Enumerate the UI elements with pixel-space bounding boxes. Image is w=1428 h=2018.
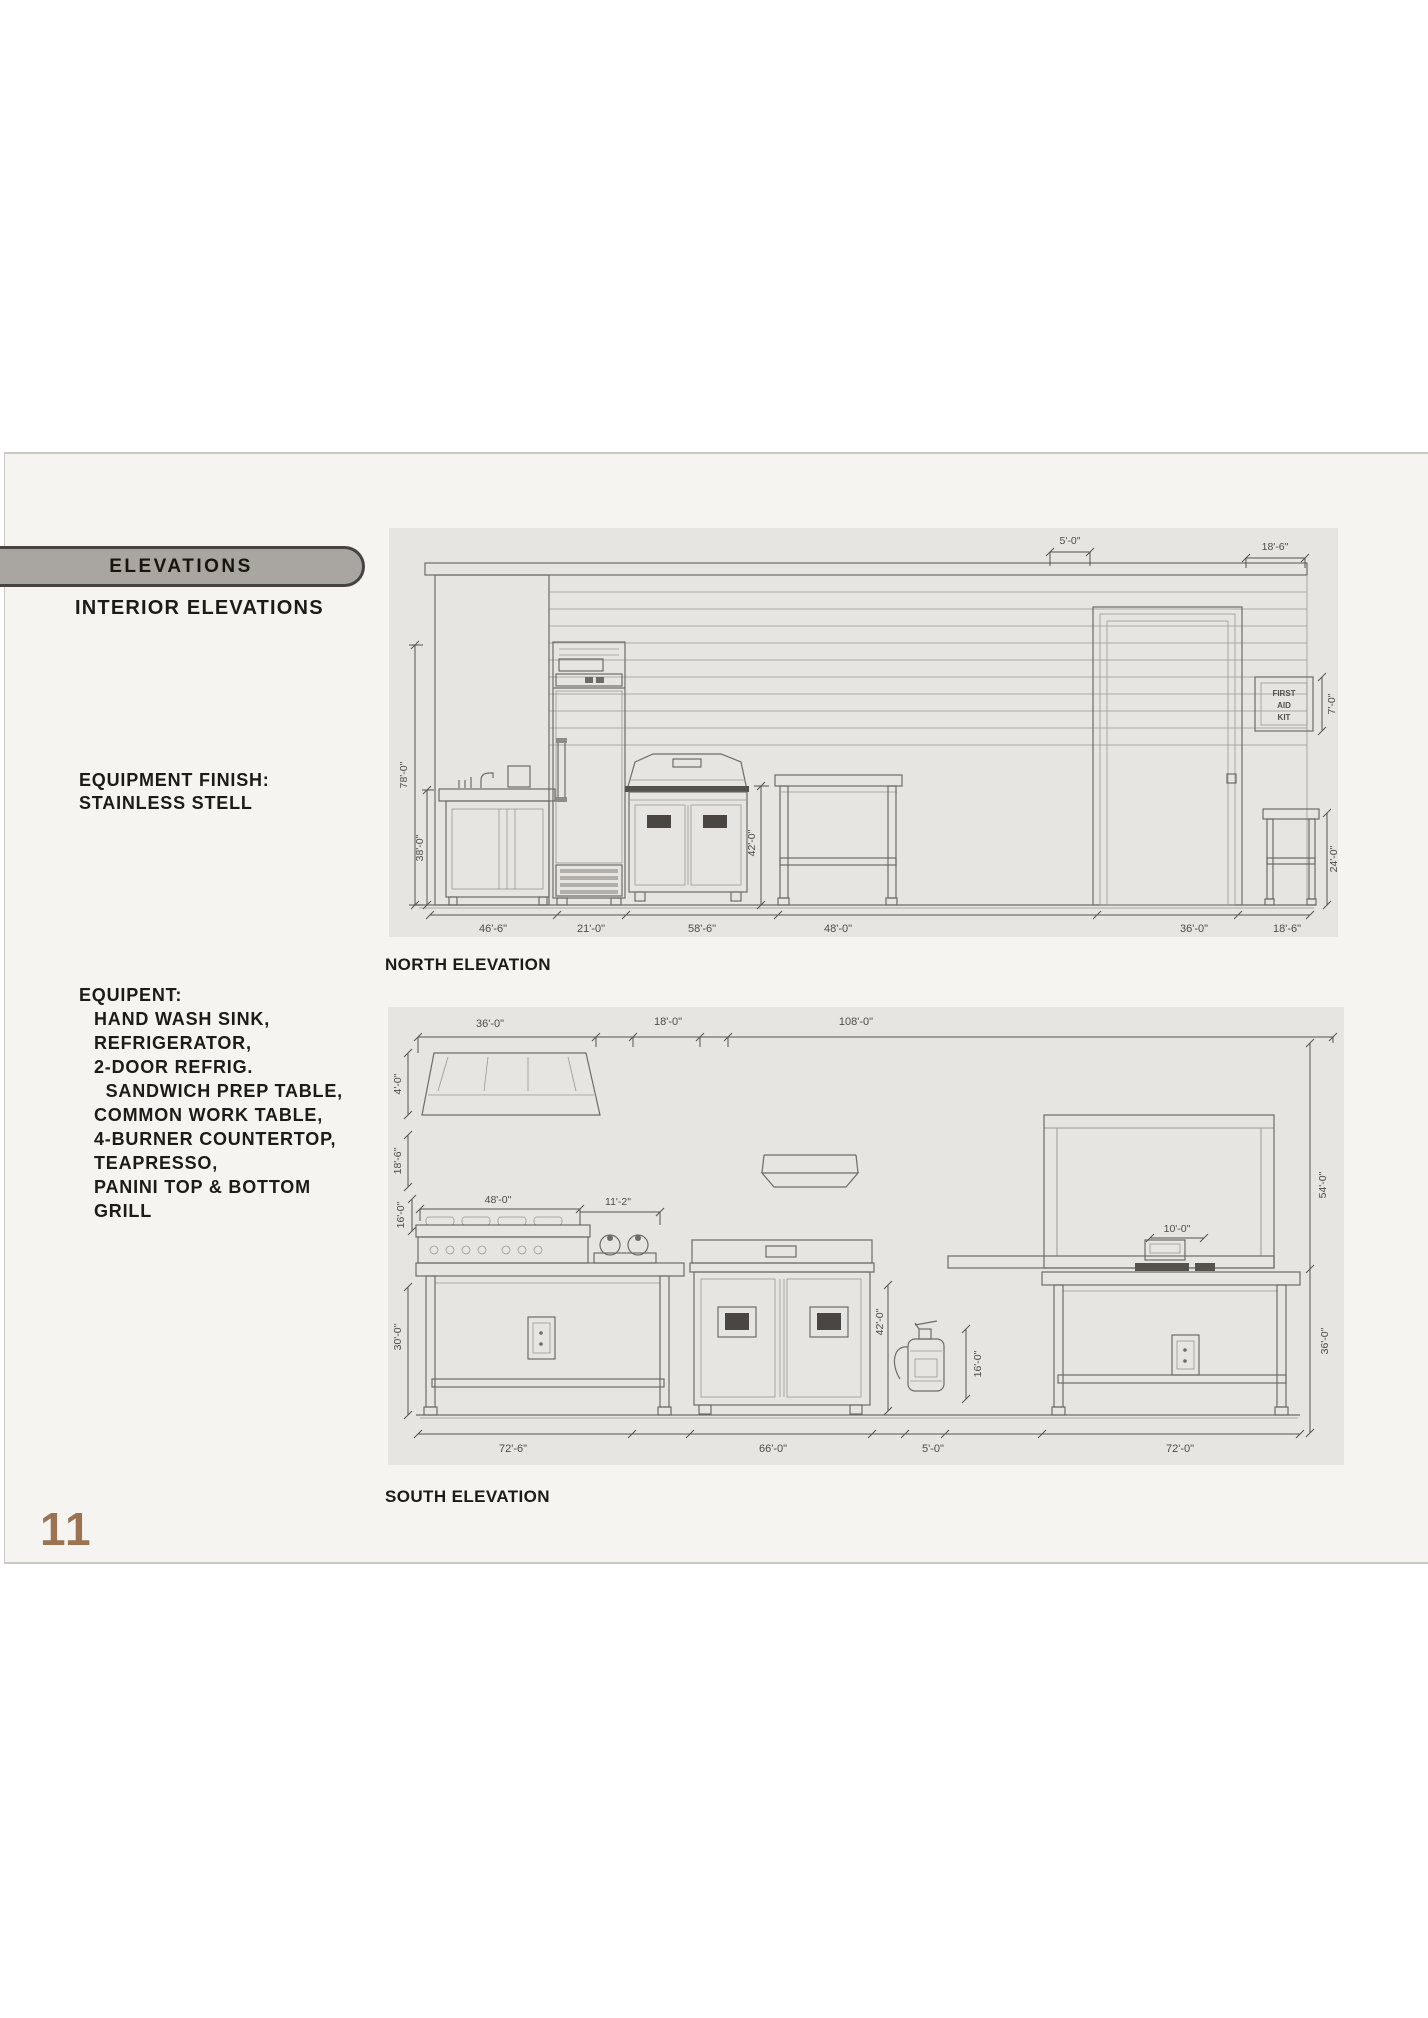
equipment-list-block: EQUIPENT: HAND WASH SINK,REFRIGERATOR,2-… [79,983,343,1223]
dimension-label: 66'-0" [759,1443,787,1455]
dimension-label: 36'-0" [1180,923,1208,935]
page-subtitle: INTERIOR ELEVATIONS [75,597,324,620]
south-elevation-drawing: 36'-0" 18'-0" 108'-0" 4'-0" 18'-6" 16'-0… [388,1007,1344,1465]
equipment-item: PANINI TOP & BOTTOM [79,1175,343,1199]
first-aid-line2: AID [1277,701,1291,710]
dimension-label: 10'-0" [1164,1223,1191,1235]
equipment-item: HAND WASH SINK, [79,1007,343,1031]
dimension-label: 36'-0" [476,1018,504,1030]
portfolio-page: ELEVATIONS INTERIOR ELEVATIONS EQUIPMENT… [0,0,1428,2018]
equipment-list-items: HAND WASH SINK,REFRIGERATOR,2-DOOR REFRI… [79,1007,343,1223]
dimension-label: 30'-0" [392,1323,404,1350]
equipment-finish-block: EQUIPMENT FINISH: STAINLESS STELL [79,769,270,815]
dimension-label: 78'-0" [398,761,410,788]
equipment-list-title: EQUIPENT: [79,983,343,1007]
elevations-tab: ELEVATIONS [0,546,365,587]
south-elevation-label: SOUTH ELEVATION [385,1487,550,1507]
equipment-item: 2-DOOR REFRIG. [79,1055,343,1079]
dimension-label: 18'-0" [654,1016,682,1028]
dimension-label: 5'-0" [922,1443,944,1455]
dimension-label: 46'-6" [479,923,507,935]
north-drawing-paper [389,528,1338,937]
dimension-label: 5'-0" [1060,535,1081,547]
north-elevation-drawing: FIRST AID KIT 78'-0" 38'-0" 42 [389,528,1338,937]
dimension-label: 7'-0" [1326,693,1338,714]
equipment-item: COMMON WORK TABLE, [79,1103,343,1127]
dimension-label: 11'-2" [605,1196,631,1208]
equipment-finish-value: STAINLESS STELL [79,792,270,815]
equipment-finish-title: EQUIPMENT FINISH: [79,769,270,792]
dimension-label: 18'-6" [1262,541,1289,553]
dimension-label: 72'-0" [1166,1443,1194,1455]
dimension-label: 38'-0" [414,834,426,861]
dimension-label: 48'-0" [485,1194,512,1206]
dimension-label: 42'-0" [874,1308,886,1335]
dimension-label: 58'-6" [688,923,716,935]
page-number: 11 [40,1506,93,1552]
dimension-label: 54'-0" [1317,1171,1329,1198]
dimension-label: 4'-0" [392,1073,404,1094]
equipment-item: 4-BURNER COUNTERTOP, [79,1127,343,1151]
first-aid-line3: KIT [1278,713,1291,722]
first-aid-line1: FIRST [1272,689,1295,698]
dimension-label: 16'-0" [395,1201,407,1228]
equipment-item: TEAPRESSO, [79,1151,343,1175]
equipment-item: REFRIGERATOR, [79,1031,343,1055]
equipment-item: SANDWICH PREP TABLE, [79,1079,343,1103]
dimension-label: 36'-0" [1319,1327,1331,1354]
dimension-label: 16'-0" [972,1350,984,1377]
north-elevation-label: NORTH ELEVATION [385,955,551,975]
dimension-label: 108'-0" [839,1016,873,1028]
dimension-label: 42'-0" [746,829,758,856]
equipment-item: GRILL [79,1199,343,1223]
dimension-label: 72'-6" [499,1443,527,1455]
dimension-label: 48'-0" [824,923,852,935]
dimension-label: 21'-0" [577,923,605,935]
dimension-label: 18'-6" [1273,923,1301,935]
south-drawing-paper [388,1007,1344,1465]
dimension-label: 18'-6" [392,1147,404,1174]
elevations-tab-label: ELEVATIONS [109,556,253,578]
dimension-label: 24'-0" [1328,845,1338,872]
